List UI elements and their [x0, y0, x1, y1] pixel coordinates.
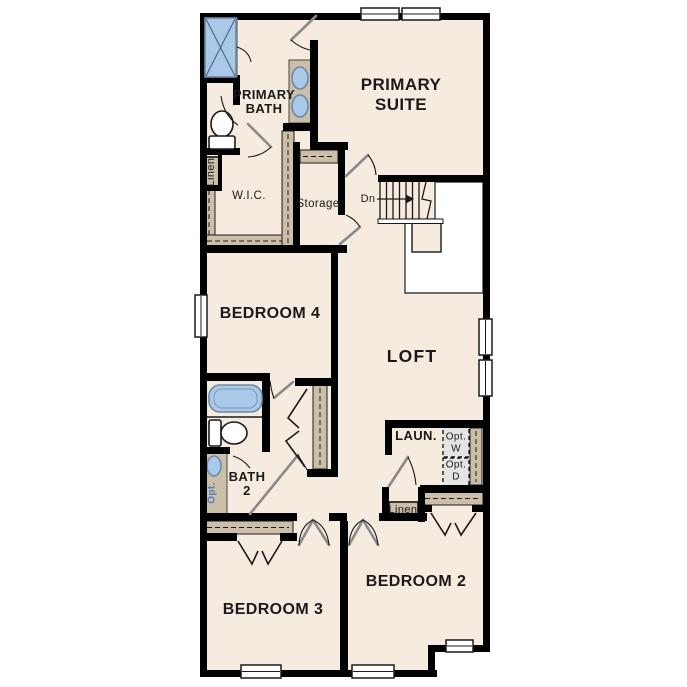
toilet-fixture: [209, 420, 247, 446]
room-label-bath2: BATH2: [229, 470, 266, 498]
optional-sink-label: Opt.: [206, 482, 218, 504]
stairs-down-label: Dn: [361, 193, 376, 205]
window: [361, 8, 399, 20]
room-label-bedroom4: BEDROOM 4: [220, 305, 321, 323]
floor-plan-drawing: [0, 0, 687, 687]
room-label-bedroom3: BEDROOM 3: [223, 601, 324, 619]
optional-washer-label: Opt.W: [446, 432, 467, 455]
window: [241, 665, 281, 678]
window: [479, 319, 492, 355]
floor-plan: PRIMARYBATH PRIMARYSUITE W.I.C. Storage …: [0, 0, 687, 687]
shower-fixture: [205, 18, 237, 77]
toilet-fixture: [209, 111, 235, 149]
window: [446, 640, 473, 652]
window: [195, 295, 207, 337]
sink-fixture: [292, 67, 308, 89]
linen-label-primary: Linen: [205, 158, 217, 187]
linen-label-hall: Linen: [389, 504, 418, 516]
optional-dryer-label: Opt.D: [446, 460, 467, 483]
bathtub-fixture: [209, 385, 262, 412]
room-label-wic: W.I.C.: [232, 190, 266, 202]
window: [479, 360, 492, 396]
room-label-laundry: LAUN.: [395, 429, 437, 443]
window: [352, 665, 394, 678]
room-label-loft: LOFT: [387, 346, 437, 366]
exterior-notch: [435, 652, 490, 677]
room-label-bedroom2: BEDROOM 2: [366, 573, 467, 591]
room-label-storage: Storage: [296, 198, 339, 210]
room-label-primary-bath: PRIMARYBATH: [233, 88, 295, 116]
window: [402, 8, 440, 20]
room-label-primary-suite: PRIMARYSUITE: [361, 75, 442, 115]
sink-fixture: [207, 456, 221, 476]
